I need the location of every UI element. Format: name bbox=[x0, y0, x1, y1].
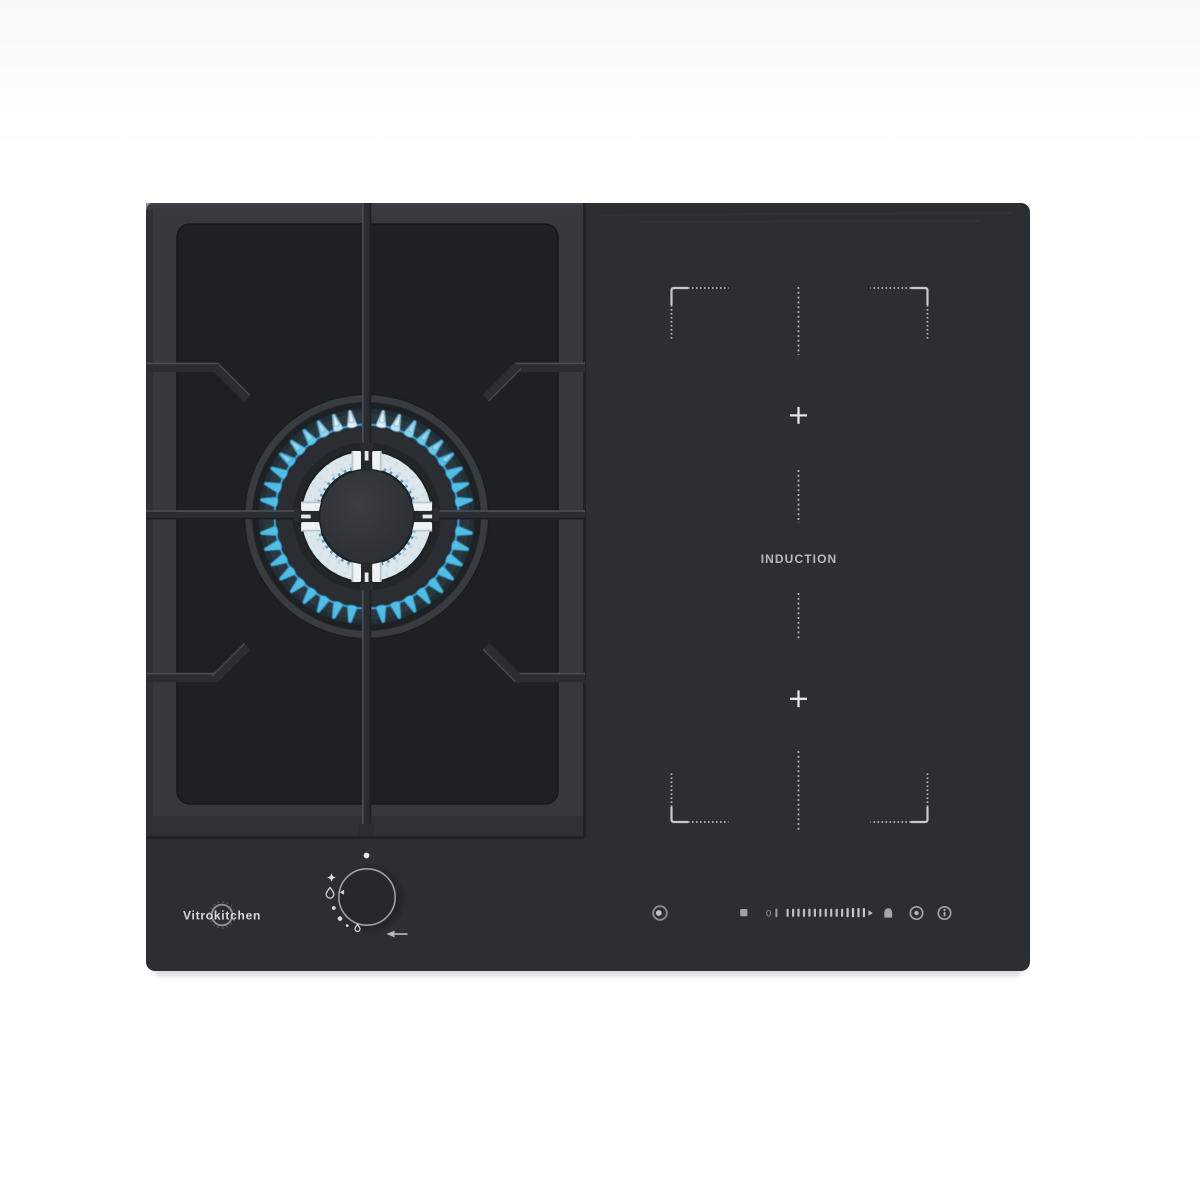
svg-text:INDUCTION: INDUCTION bbox=[761, 552, 838, 566]
svg-text:0: 0 bbox=[766, 908, 771, 919]
svg-text:Vitrokitchen: Vitrokitchen bbox=[183, 909, 261, 923]
